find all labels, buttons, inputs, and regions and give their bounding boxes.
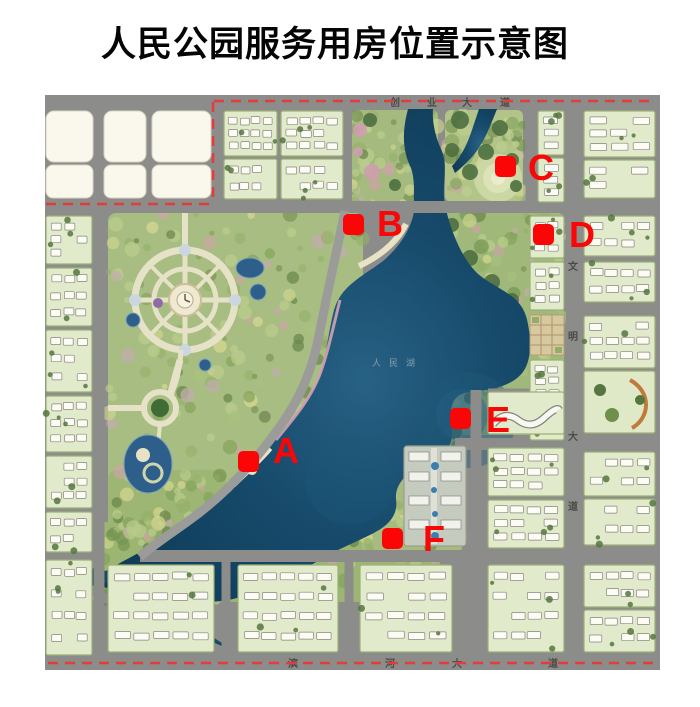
marker-c-square bbox=[495, 156, 516, 177]
svg-text:文: 文 bbox=[568, 260, 579, 273]
marker-b-square bbox=[343, 214, 364, 235]
park-location-map: 创 业 大 道 文 明 大 道 滨 河 大 道 人民湖 A bbox=[0, 0, 700, 707]
svg-text:道: 道 bbox=[568, 500, 578, 513]
svg-text:大: 大 bbox=[462, 96, 472, 109]
svg-text:创: 创 bbox=[389, 96, 400, 109]
white-blocks bbox=[46, 111, 211, 198]
marker-d-label: D bbox=[569, 214, 595, 255]
marker-e-square bbox=[450, 408, 471, 429]
svg-text:明: 明 bbox=[568, 331, 578, 343]
marker-b-label: B bbox=[377, 203, 403, 244]
map-canvas: 创 业 大 道 文 明 大 道 滨 河 大 道 人民湖 A bbox=[0, 0, 700, 707]
marker-c-label: C bbox=[528, 147, 554, 188]
marker-f-label: F bbox=[423, 518, 445, 559]
svg-text:大: 大 bbox=[568, 430, 578, 443]
svg-text:道: 道 bbox=[500, 96, 510, 109]
marker-a-square bbox=[238, 451, 259, 472]
svg-text:业: 业 bbox=[427, 96, 437, 109]
lake-label: 人民湖 bbox=[372, 358, 423, 369]
marker-d-square bbox=[533, 224, 554, 245]
marker-f-square bbox=[382, 528, 403, 549]
marker-a-label: A bbox=[273, 430, 299, 471]
marker-e-label: E bbox=[486, 399, 510, 440]
